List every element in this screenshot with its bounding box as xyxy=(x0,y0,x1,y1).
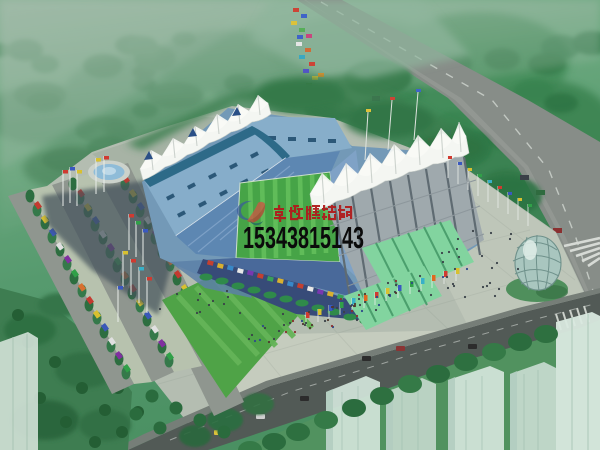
svg-text:15343815143: 15343815143 xyxy=(243,220,364,255)
